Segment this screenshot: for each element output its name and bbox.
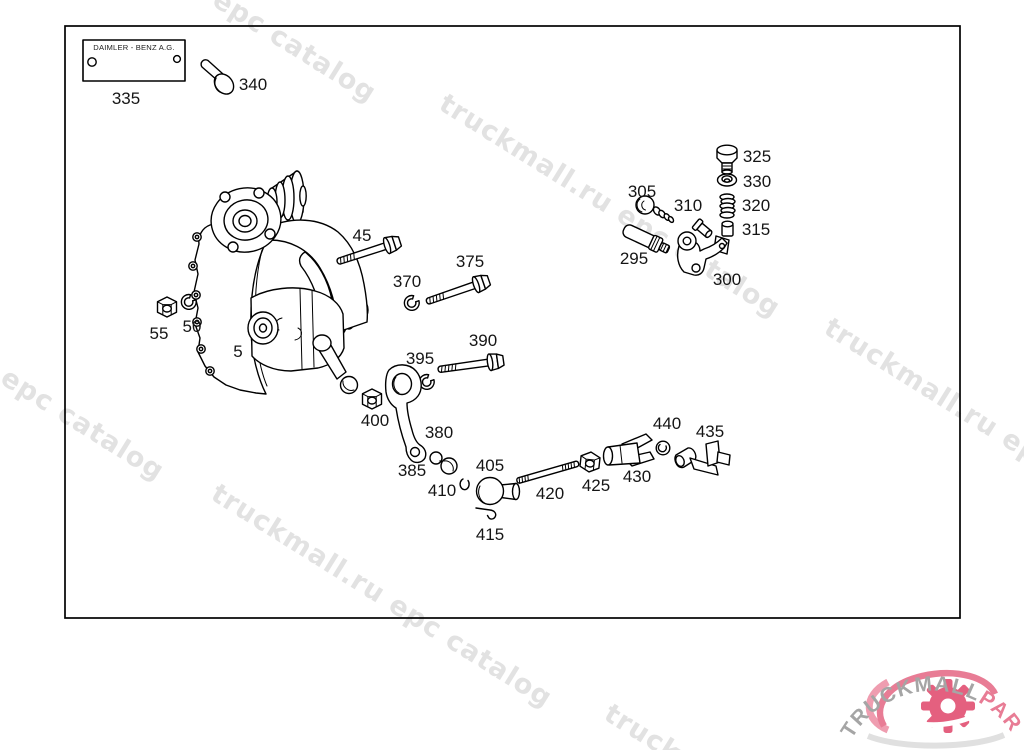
- part-drawing-390-hex-bolt: [437, 352, 505, 378]
- logo-truckmall-parts: TRUCKMALLPARTS: [0, 0, 1024, 746]
- part-label-420: 420: [536, 484, 564, 503]
- part-drawing-405-ball-socket: [477, 478, 520, 505]
- part-drawing-325-plug: [717, 145, 737, 174]
- part-drawing-430-coupling: [604, 434, 655, 466]
- part-label-320: 320: [742, 196, 770, 215]
- part-drawing-415-clip: [476, 508, 496, 519]
- logo-text-parts: PARTS: [0, 0, 1024, 736]
- part-label-410: 410: [428, 481, 456, 500]
- part-drawing-370-lock-washer: [403, 294, 421, 312]
- part-drawing-55-nut: [158, 297, 177, 317]
- svg-text:TRUCKMALLPARTS: TRUCKMALLPARTS: [0, 0, 1024, 742]
- part-label-300: 300: [713, 270, 741, 289]
- part-drawing-420-rod: [516, 461, 579, 484]
- part-label-5: 5: [233, 342, 242, 361]
- plate-inscription: DAIMLER - BENZ A.G.: [93, 43, 174, 52]
- logo-shadow-swoosh: [868, 735, 1004, 746]
- part-label-55: 55: [150, 324, 169, 343]
- part-label-310: 310: [674, 196, 702, 215]
- part-label-330: 330: [743, 172, 771, 191]
- part-label-50: 50: [183, 317, 202, 336]
- part-label-315: 315: [742, 220, 770, 239]
- part-drawing-300-bracket: [678, 232, 729, 275]
- part-label-380: 380: [425, 423, 453, 442]
- part-drawing-380-lever: [386, 365, 426, 463]
- part-drawing-330-washer: [718, 174, 737, 186]
- part-label-325: 325: [743, 147, 771, 166]
- diagram-canvas: DAIMLER - BENZ A.G.: [0, 0, 1024, 750]
- part-drawing-340-rivet: [201, 60, 237, 98]
- part-label-390: 390: [469, 331, 497, 350]
- part-label-440: 440: [653, 414, 681, 433]
- part-drawing-435-lever: [674, 441, 730, 475]
- part-drawing-400-nut: [363, 389, 382, 409]
- part-drawing-425-nut: [580, 451, 601, 473]
- part-label-385: 385: [398, 461, 426, 480]
- part-drawing-315-piston: [722, 221, 733, 236]
- part-label-430: 430: [623, 467, 651, 486]
- part-label-425: 425: [582, 476, 610, 495]
- part-drawing-375-hex-bolt: [424, 272, 492, 309]
- part-label-435: 435: [696, 422, 724, 441]
- part-label-405: 405: [476, 456, 504, 475]
- part-label-305: 305: [628, 182, 656, 201]
- part-label-395: 395: [406, 349, 434, 368]
- part-drawing-320-spring: [720, 194, 735, 218]
- part-label-400: 400: [361, 411, 389, 430]
- part-drawing-335-id-plate: DAIMLER - BENZ A.G.: [83, 40, 185, 81]
- part-label-370: 370: [393, 272, 421, 291]
- part-label-45: 45: [353, 226, 372, 245]
- part-label-295: 295: [620, 249, 648, 268]
- part-label-335: 335: [112, 89, 140, 108]
- catalog-page: truckmall.ru epc catalog truckmall.ru ep…: [0, 0, 1024, 750]
- part-drawing-440-ring: [656, 441, 670, 455]
- part-label-375: 375: [456, 252, 484, 271]
- part-drawing-410-ring: [460, 479, 469, 490]
- part-drawing-385-ball-stud: [430, 452, 457, 474]
- part-label-340: 340: [239, 75, 267, 94]
- part-drawing-5-transfer-case-housing: [189, 171, 368, 394]
- part-label-415: 415: [476, 525, 504, 544]
